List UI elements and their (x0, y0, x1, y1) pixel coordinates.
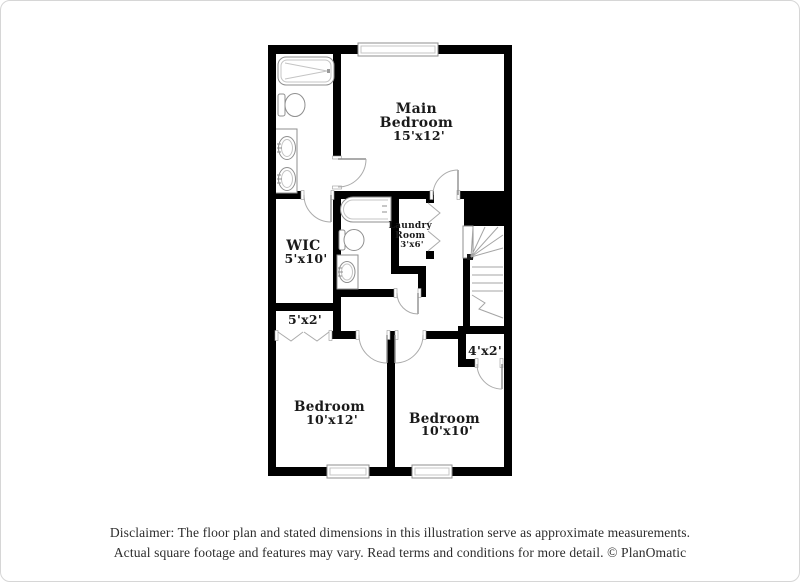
door-ensuite-bathroom (338, 159, 366, 187)
bathtub (341, 197, 392, 222)
door-hall-bathroom (397, 293, 418, 314)
label-bedroom-left: Bedroom 10'x12' (294, 399, 370, 427)
door-main-bedroom (433, 170, 458, 195)
floor-plan-page: Main Bedroom 15'x12' WIC 5'x10' Laundry … (0, 0, 800, 582)
bifold-door-hall-closet (278, 332, 329, 341)
double-sink-vanity (276, 129, 297, 193)
door-jamb (275, 331, 278, 341)
window-bedroom-left (327, 465, 369, 478)
disclaimer-line-1: Disclaimer: The floor plan and stated di… (1, 523, 799, 543)
stair-winders (471, 227, 503, 257)
wall-exterior-bottom (268, 467, 512, 476)
window-bedroom-right (412, 465, 452, 478)
label-wic: WIC 5'x10' (285, 238, 328, 266)
wall-segment (426, 251, 434, 259)
stairwell-solid-block (464, 191, 504, 226)
disclaimer-line-2: Actual square footage and features may v… (1, 543, 799, 563)
stair-treads (472, 267, 503, 291)
wall-bedroom-divider (387, 331, 395, 467)
bathtub (278, 57, 334, 85)
wall-exterior-right (504, 45, 512, 476)
wall-segment (331, 331, 359, 339)
wall-segment (333, 289, 397, 297)
wall-exterior-left (268, 45, 276, 476)
hall-bathroom-fixtures (337, 197, 391, 289)
label-bedroom-right: Bedroom 10'x10' (409, 411, 485, 438)
ensuite-bathroom-fixtures (276, 57, 334, 193)
stair-break-line (472, 295, 503, 318)
wall-segment (391, 266, 426, 274)
wall-stairwell-side (463, 258, 470, 334)
door-closet-bedroom-right (477, 364, 502, 389)
disclaimer: Disclaimer: The floor plan and stated di… (1, 523, 799, 563)
door-wic (304, 195, 331, 222)
door-bedroom-left (359, 335, 387, 363)
toilet (339, 230, 364, 251)
label-closet-hall: 5'x2' (288, 312, 322, 327)
faucet (327, 69, 330, 73)
wall-segment (268, 303, 333, 311)
toilet (278, 94, 305, 117)
door-jamb (329, 331, 332, 341)
floor-plan-drawing: Main Bedroom 15'x12' WIC 5'x10' Laundry … (1, 1, 800, 511)
window-main-bedroom (358, 43, 438, 56)
label-main-bedroom: Main Bedroom 15'x12' (380, 101, 459, 143)
door-bedroom-right (395, 335, 423, 363)
label-closet-bedroom-right: 4'x2' (468, 343, 502, 358)
sink (337, 255, 358, 289)
